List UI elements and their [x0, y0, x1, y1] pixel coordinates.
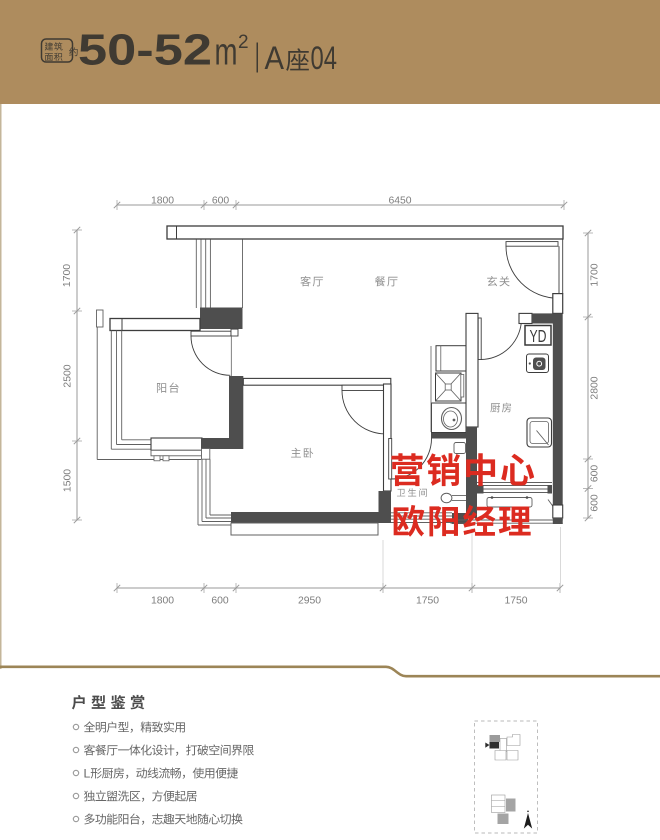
svg-text:L: L [84, 767, 91, 781]
svg-text:YD: YD [530, 326, 547, 346]
svg-text:6450: 6450 [388, 196, 411, 207]
svg-text:2950: 2950 [298, 596, 321, 607]
svg-text:1700: 1700 [62, 264, 73, 287]
svg-text:600: 600 [212, 196, 230, 207]
svg-text:50-52: 50-52 [78, 26, 212, 75]
svg-text:1700: 1700 [590, 263, 601, 286]
svg-text:2800: 2800 [590, 376, 601, 399]
svg-text:600: 600 [590, 465, 601, 483]
svg-text:1800: 1800 [151, 596, 174, 607]
svg-text:2500: 2500 [63, 364, 74, 387]
svg-text:1750: 1750 [416, 596, 439, 607]
svg-text:m: m [215, 32, 238, 74]
svg-text:04: 04 [311, 40, 338, 76]
svg-text:600: 600 [211, 596, 229, 607]
svg-text:A: A [265, 40, 285, 76]
svg-text:600: 600 [590, 494, 601, 512]
svg-text:1800: 1800 [151, 196, 174, 207]
svg-text:1750: 1750 [504, 596, 527, 607]
svg-text:1500: 1500 [63, 469, 74, 492]
svg-text:2: 2 [238, 32, 249, 53]
